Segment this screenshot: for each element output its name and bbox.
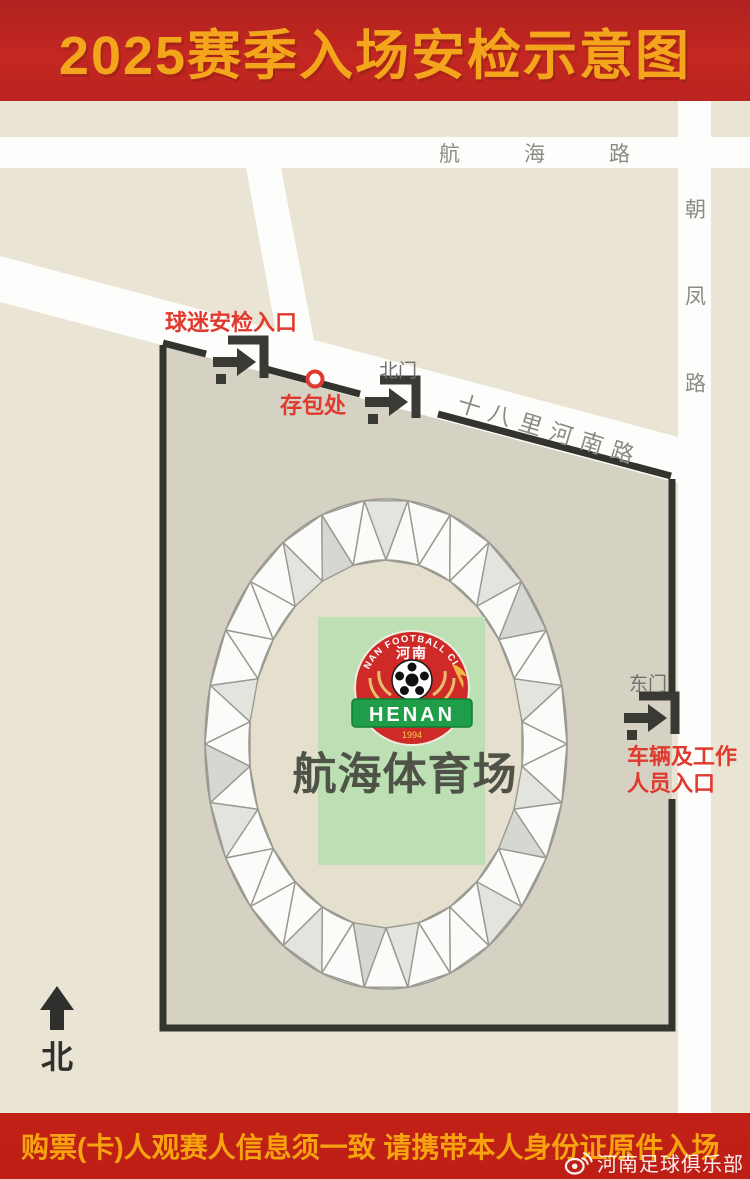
watermark: 河南足球俱乐部 xyxy=(563,1148,744,1177)
poster-page: 2025赛季入场安检示意图 xyxy=(0,0,750,1179)
bag-storage-label: 存包处 xyxy=(280,393,346,418)
north-arrow-shaft xyxy=(50,1006,64,1030)
weibo-icon xyxy=(563,1150,593,1176)
road-label-hanghai: 航海路 xyxy=(439,143,694,166)
fan-entrance-label: 球迷安检入口 xyxy=(165,310,297,335)
header-band: 2025赛季入场安检示意图 xyxy=(0,0,750,101)
north-gate-label: 北门 xyxy=(379,360,417,382)
east-gate-label: 东门 xyxy=(629,673,667,695)
vehicle-entrance-label-line1: 车辆及工作 xyxy=(627,744,737,769)
henan-fc-logo: HENAN FOOTBALL CLUB 河南 xyxy=(352,631,472,745)
footer-banner: 购票(卡)人观赛人信息须一致 请携带本人身份证原件入场 河南足球俱乐部 xyxy=(0,1113,750,1179)
logo-club-name-cn: 河南 xyxy=(396,645,428,661)
north-compass-label: 北 xyxy=(41,1039,73,1075)
vehicle-entrance-label-line2: 人员入口 xyxy=(627,771,715,796)
site-map: HENAN FOOTBALL CLUB 河南 xyxy=(0,0,750,1179)
stadium-name: 航海体育场 xyxy=(293,750,518,799)
page-title: 2025赛季入场安检示意图 xyxy=(59,11,691,90)
watermark-text: 河南足球俱乐部 xyxy=(597,1148,744,1177)
logo-banner-text: HENAN xyxy=(369,704,455,726)
logo-soccer-ball-icon xyxy=(392,660,432,700)
road-label-chaofeng: 朝凤路 xyxy=(683,198,707,459)
logo-year: 1994 xyxy=(402,730,422,740)
bag-storage-marker xyxy=(308,372,323,387)
